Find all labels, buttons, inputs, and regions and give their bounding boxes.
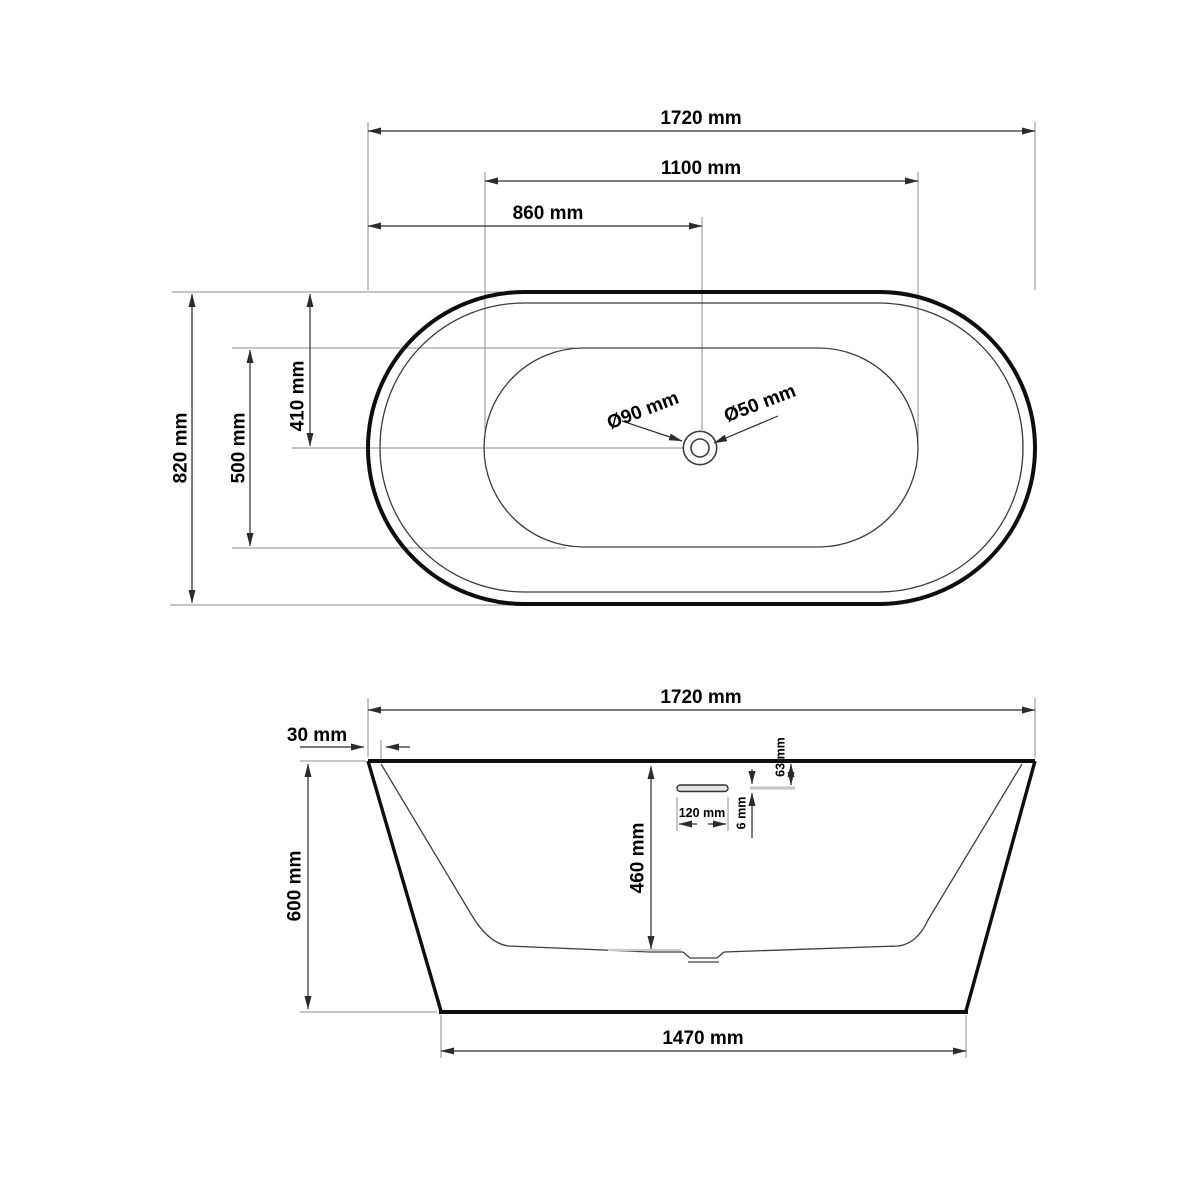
tub-right-inner-wall	[724, 764, 1022, 952]
side-view: 1720 mm 30 mm 600 mm 460 mm 63 mm 6 mm	[285, 687, 1035, 1058]
dimension-label: 600 mm	[285, 851, 306, 922]
dim-top-drain-center-length: 860 mm	[368, 203, 702, 226]
dim-drain-inner-diameter: Ø50 mm	[714, 381, 799, 443]
dim-inner-depth: 460 mm	[628, 766, 651, 949]
dimension-label: 500 mm	[229, 413, 250, 484]
dim-base-length: 1470 mm	[441, 1028, 966, 1051]
dimension-label: 860 mm	[513, 203, 584, 224]
dimension-label: 120 mm	[679, 806, 726, 820]
dimension-label: 30 mm	[287, 725, 347, 746]
dim-drain-outer-diameter: Ø90 mm	[604, 388, 682, 441]
drain-outer-circle	[683, 431, 716, 464]
dim-overflow-slot-height: 6 mm	[734, 769, 752, 838]
dim-top-inner-basin-width: 500 mm	[229, 350, 250, 546]
dimension-label: 460 mm	[628, 823, 649, 894]
dim-top-width-to-center: 410 mm	[288, 294, 310, 446]
dimension-label: 1720 mm	[660, 108, 741, 129]
tub-left-outer-wall	[368, 761, 441, 1011]
dimension-label: 820 mm	[171, 413, 192, 484]
dimension-label: Ø50 mm	[721, 381, 799, 427]
dim-side-overall-length: 1720 mm	[368, 687, 1035, 710]
drain-recess-outline	[683, 952, 724, 958]
top-view: 1720 mm 1100 mm 860 mm 820 mm 500 mm 410…	[170, 108, 1035, 605]
dim-top-overall-length: 1720 mm	[368, 108, 1035, 131]
dimension-label: 1720 mm	[660, 687, 741, 708]
dim-overflow-slot-width: 120 mm	[679, 806, 726, 824]
dimension-label: 1100 mm	[661, 158, 741, 179]
side-view-extension-lines	[300, 698, 1035, 1058]
dimension-label: 6 mm	[734, 797, 748, 830]
drain-inner-circle	[691, 439, 709, 457]
dimension-label: 410 mm	[288, 361, 309, 432]
bathtub-dimension-drawing: 1720 mm 1100 mm 860 mm 820 mm 500 mm 410…	[0, 0, 1200, 1200]
technical-drawing-page: 1720 mm 1100 mm 860 mm 820 mm 500 mm 410…	[0, 0, 1200, 1200]
dimension-label: 1470 mm	[662, 1028, 743, 1049]
dim-top-inner-basin-length: 1100 mm	[485, 158, 918, 181]
dimension-label: 63 mm	[773, 737, 787, 777]
dimension-label: Ø90 mm	[604, 388, 682, 434]
dim-top-overall-width: 820 mm	[171, 294, 192, 603]
dim-overall-height: 600 mm	[285, 764, 308, 1009]
overflow-slot	[677, 785, 728, 792]
dim-rim-lip-width: 30 mm	[287, 725, 410, 747]
